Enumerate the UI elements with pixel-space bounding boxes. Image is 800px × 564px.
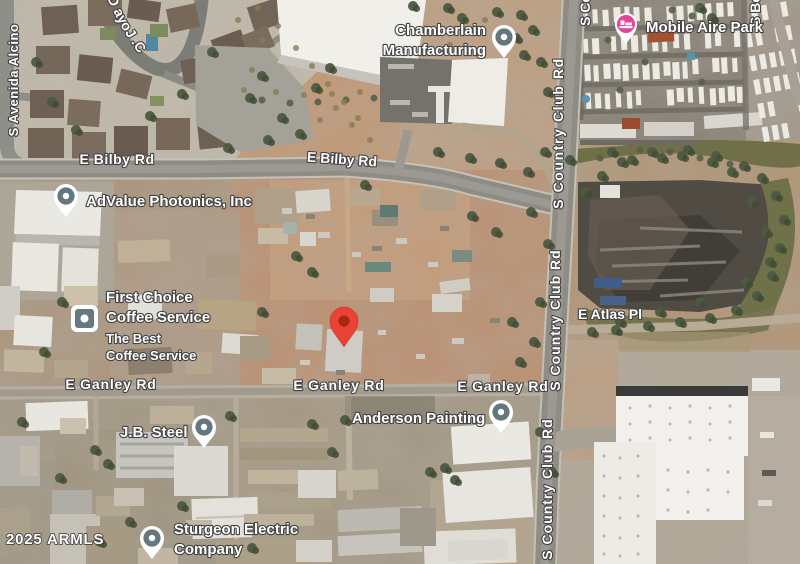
svg-text:AdValue Photonics, Inc: AdValue Photonics, Inc [86, 193, 252, 210]
svg-text:2025 ARMLS: 2025 ARMLS [6, 531, 104, 548]
svg-text:E Ganley Rd: E Ganley Rd [65, 376, 156, 392]
svg-text:Coffee Service: Coffee Service [106, 309, 210, 326]
svg-text:S Country Club Rd: S Country Club Rd [547, 249, 563, 390]
svg-text:Manufacturing: Manufacturing [383, 42, 486, 59]
svg-text:J.B. Steel: J.B. Steel [120, 424, 188, 441]
svg-text:First Choice: First Choice [106, 289, 193, 306]
svg-text:The Best: The Best [106, 331, 162, 346]
svg-text:Mobile Aire Park: Mobile Aire Park [646, 19, 764, 36]
svg-text:E Bilby Rd: E Bilby Rd [79, 151, 154, 167]
svg-text:S Avenida Alcino: S Avenida Alcino [6, 24, 21, 137]
svg-text:S Country Club Rd: S Country Club Rd [539, 418, 555, 559]
svg-text:E Ganley Rd: E Ganley Rd [293, 377, 384, 393]
svg-text:Chamberlain: Chamberlain [395, 22, 486, 39]
svg-text:E Ganley Rd: E Ganley Rd [457, 378, 548, 394]
svg-text:Company: Company [174, 541, 243, 558]
svg-text:S Co: S Co [577, 0, 593, 26]
svg-text:Sturgeon Electric: Sturgeon Electric [174, 521, 298, 538]
svg-text:Coffee Service: Coffee Service [106, 348, 196, 363]
svg-text:E Atlas Pl: E Atlas Pl [578, 306, 642, 322]
svg-text:S Country Club Rd: S Country Club Rd [550, 57, 566, 209]
svg-text:Anderson Painting: Anderson Painting [352, 410, 485, 427]
